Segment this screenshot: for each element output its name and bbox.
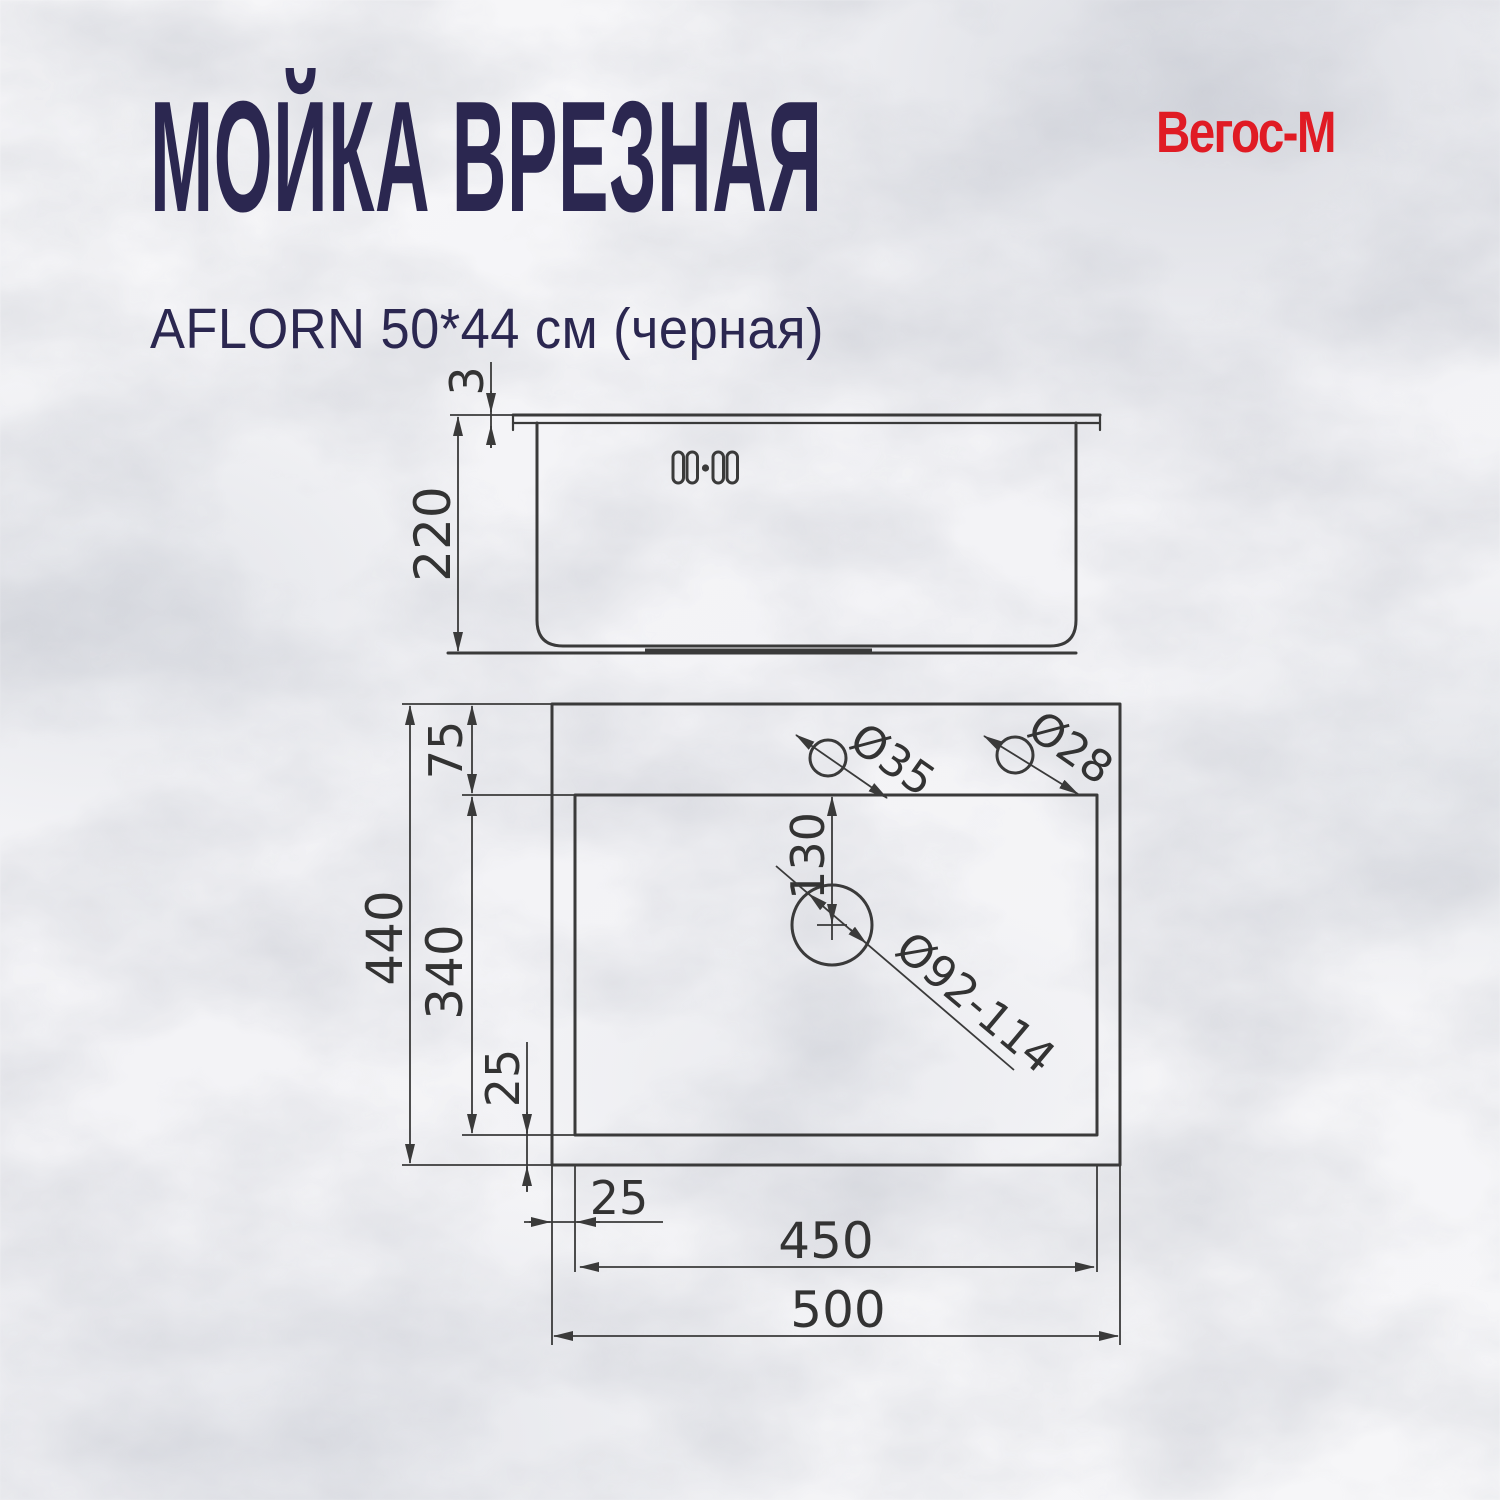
faucet-hole-label: Ø35 <box>841 713 944 807</box>
top-view-drawing: 440 75 340 25 25 450 500 130 Ø92-114 <box>356 701 1122 1345</box>
drain-leader-arrow-lower <box>850 929 866 943</box>
dim-outer-height-label: 440 <box>356 890 414 985</box>
dim-inner-height-label: 340 <box>416 924 474 1019</box>
dim-top-offset-label: 75 <box>419 721 473 780</box>
drain-hole-label: Ø92-114 <box>886 922 1065 1084</box>
aux-hole-label: Ø28 <box>1019 701 1122 795</box>
page: { "header": { "title": "МОЙКА ВРЕЗНАЯ", … <box>0 0 1500 1500</box>
dim-bottom-offset-label: 25 <box>476 1049 530 1108</box>
dim-outer-width-label: 500 <box>790 1281 885 1339</box>
dim-inner-width-label: 450 <box>778 1212 873 1270</box>
sink-body-outline <box>537 423 1076 646</box>
side-view-drawing: 3 220 <box>404 362 1100 653</box>
dim-depth-label: 220 <box>404 486 462 581</box>
dim-drain-offset-label: 130 <box>781 812 835 900</box>
technical-drawing: 3 220 440 75 340 25 25 <box>0 0 1500 1500</box>
dim-rim-thickness-label: 3 <box>440 366 494 395</box>
dim-left-offset-label: 25 <box>590 1171 649 1225</box>
overflow-holes-icon <box>673 452 738 483</box>
